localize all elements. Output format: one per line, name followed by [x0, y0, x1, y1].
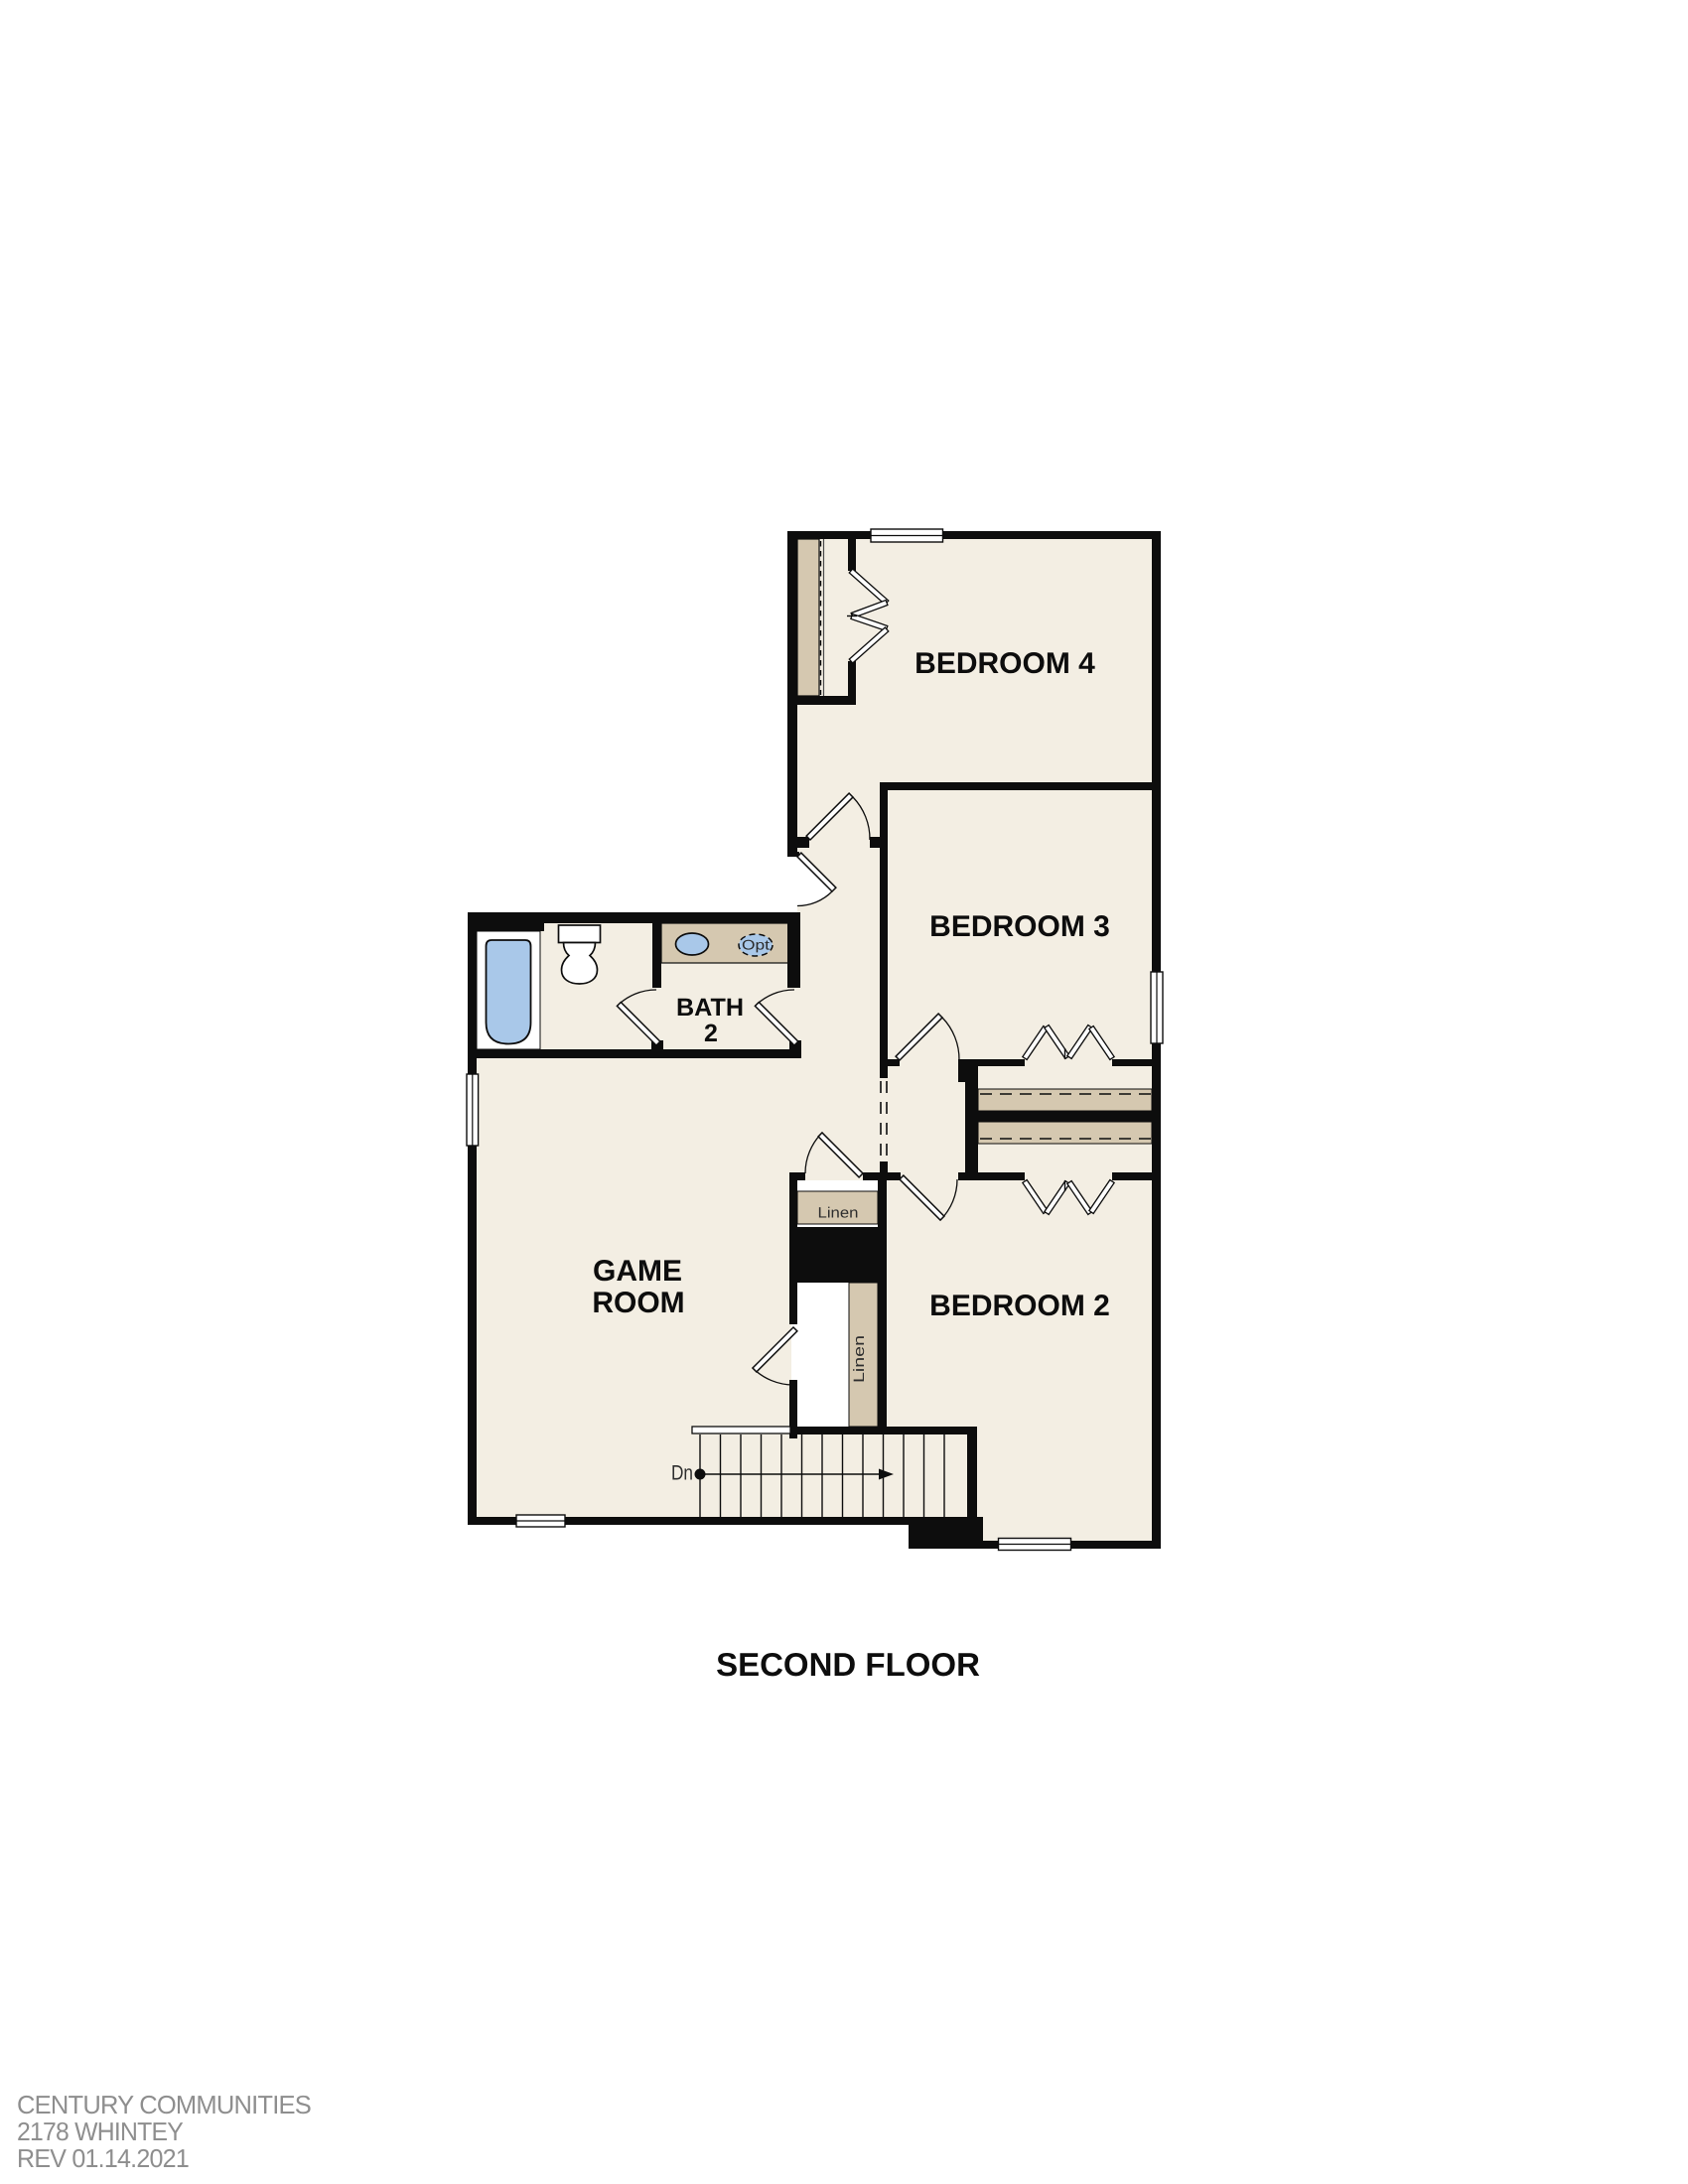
svg-text:REV 01.14.2021: REV 01.14.2021: [17, 2143, 189, 2173]
svg-text:ROOM: ROOM: [592, 1287, 684, 1319]
svg-text:Linen: Linen: [851, 1335, 868, 1383]
svg-text:BEDROOM 3: BEDROOM 3: [929, 910, 1110, 943]
svg-text:GAME: GAME: [593, 1255, 682, 1288]
svg-text:2: 2: [704, 1020, 718, 1047]
svg-text:BATH: BATH: [676, 994, 744, 1022]
svg-text:Dn: Dn: [671, 1462, 693, 1485]
svg-text:Linen: Linen: [818, 1205, 859, 1222]
svg-text:BEDROOM 2: BEDROOM 2: [929, 1290, 1110, 1322]
svg-text:2178 WHINTEY: 2178 WHINTEY: [17, 2116, 183, 2146]
svg-text:SECOND FLOOR: SECOND FLOOR: [716, 1646, 980, 1683]
svg-text:CENTURY COMMUNITIES: CENTURY COMMUNITIES: [17, 2090, 311, 2119]
svg-text:Opt: Opt: [742, 937, 770, 953]
svg-text:BEDROOM 4: BEDROOM 4: [914, 647, 1095, 680]
